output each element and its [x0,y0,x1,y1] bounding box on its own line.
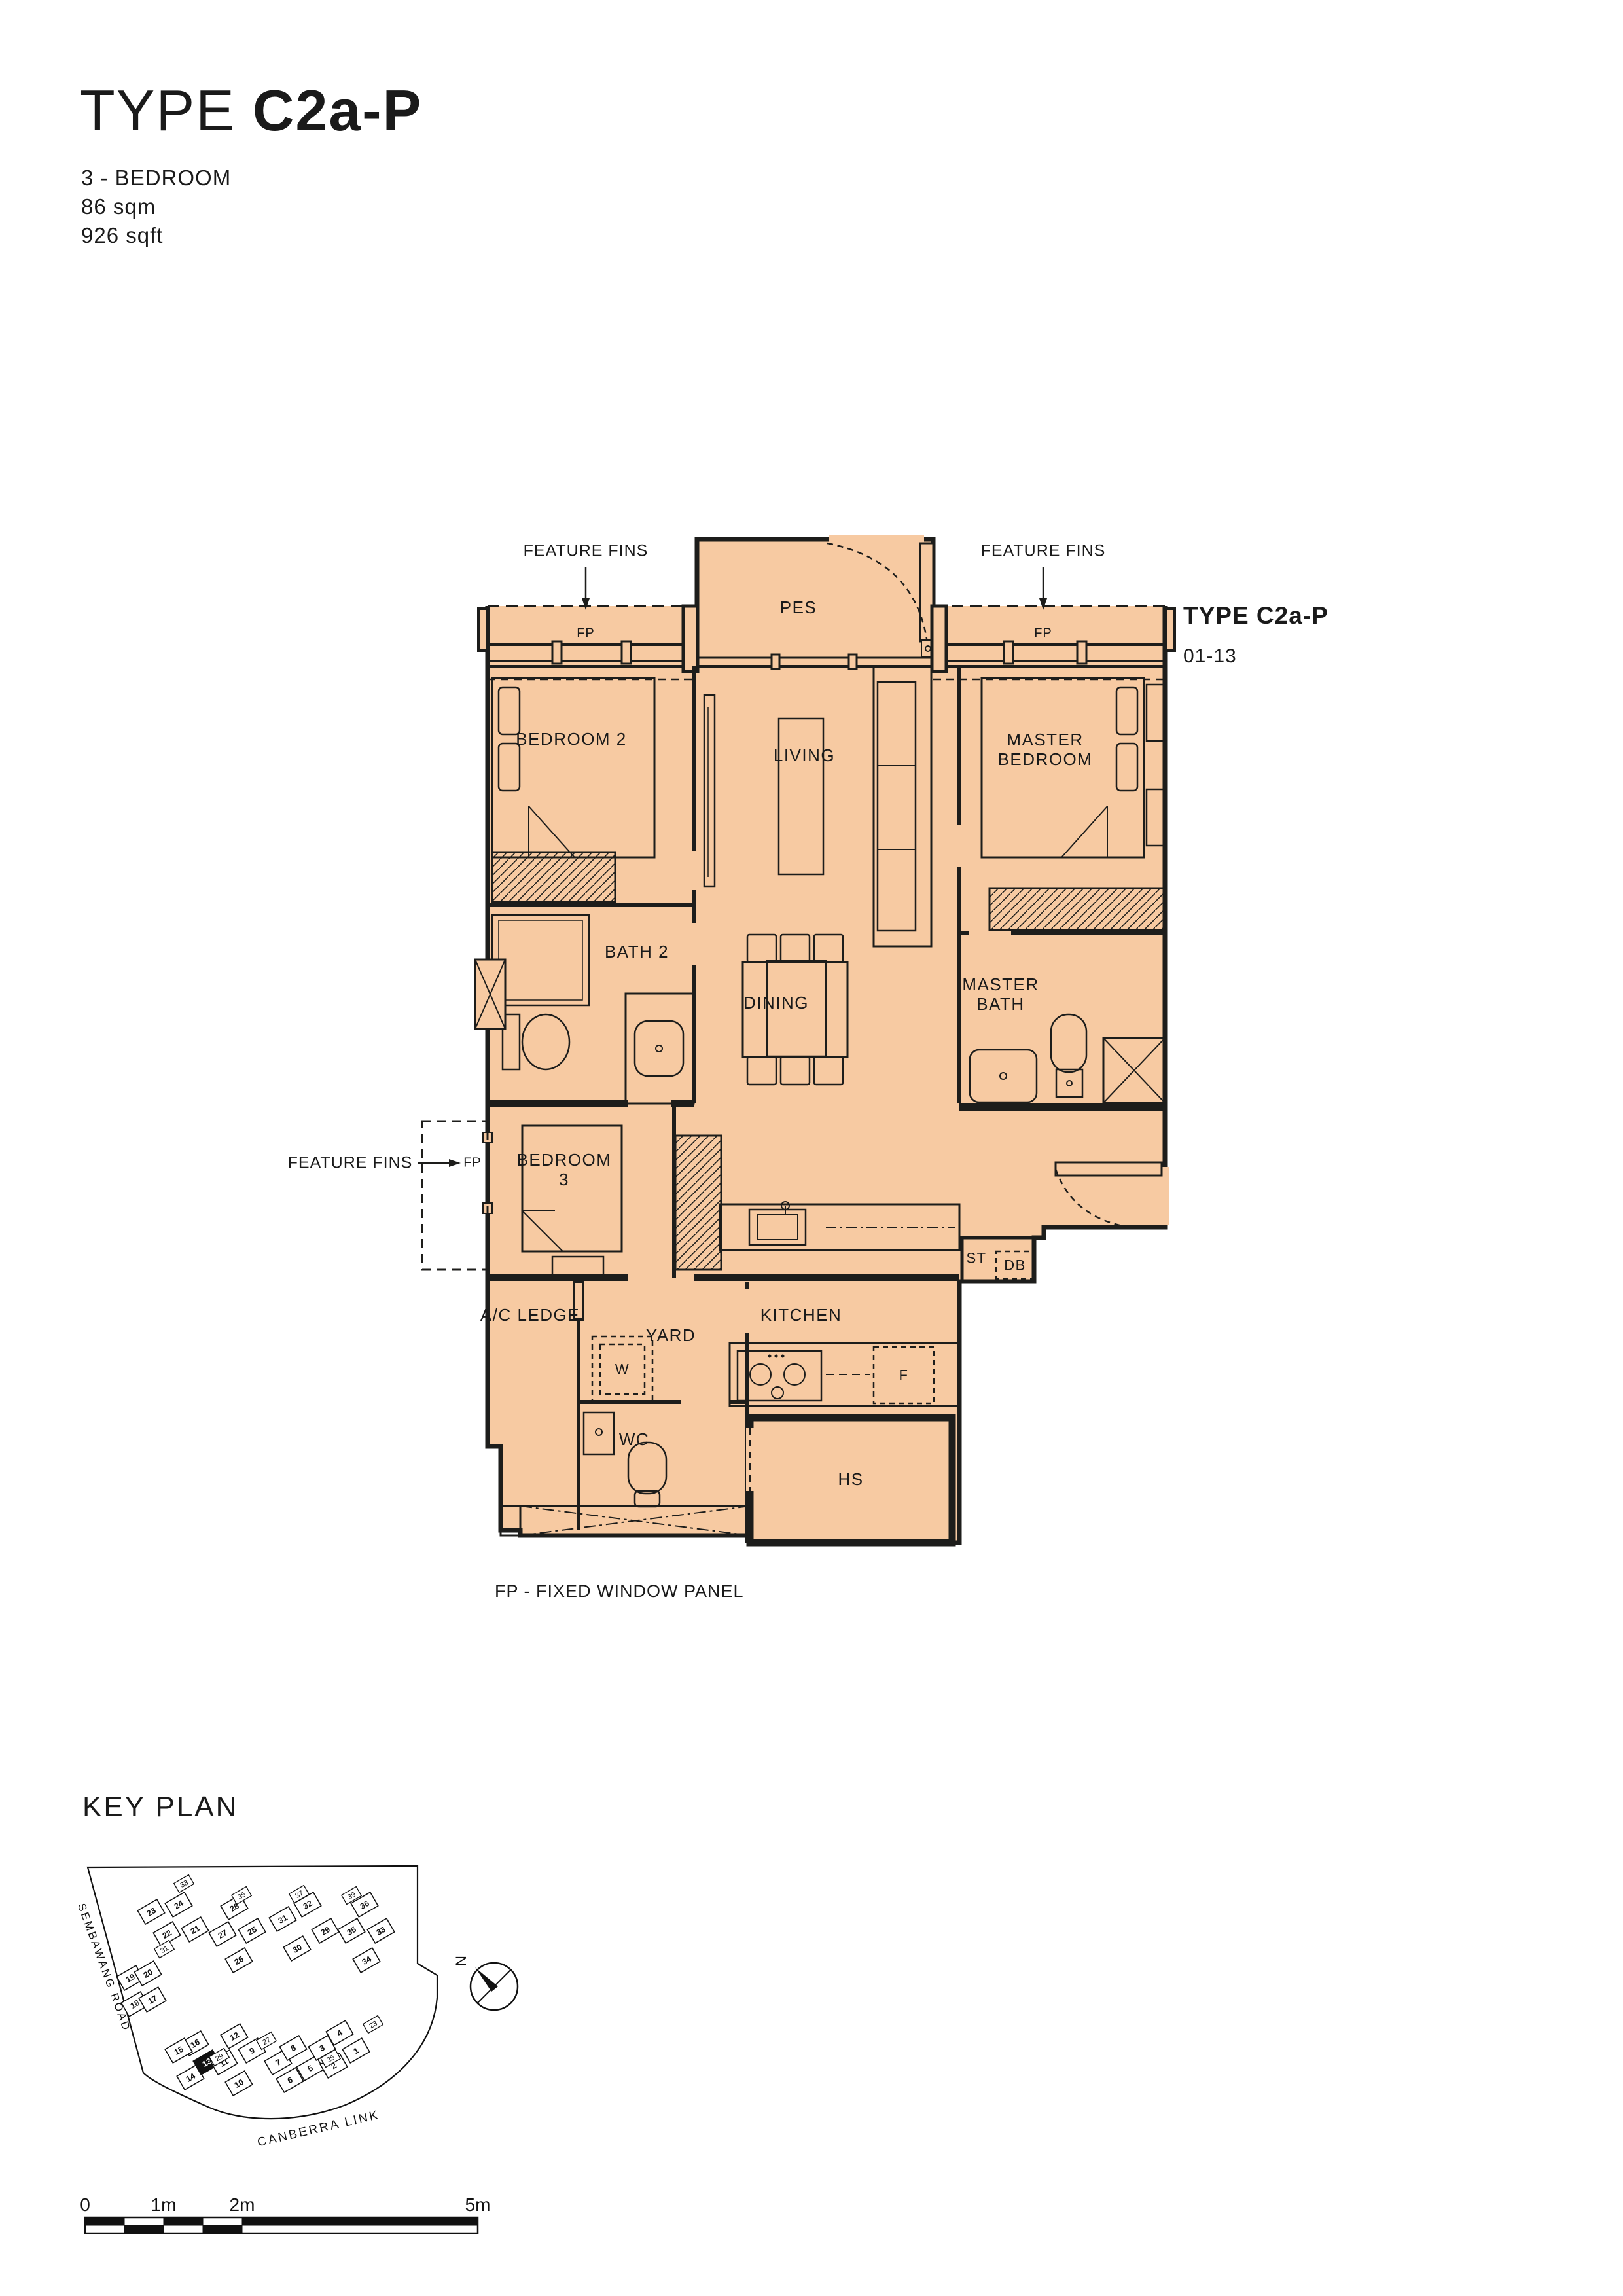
scale-seg-top [124,2217,164,2225]
scale-seg-top [242,2217,478,2225]
entry-door-leaf [1056,1162,1162,1175]
feature-fins-label-lower: FEATURE FINS [288,1154,413,1173]
pes-door-opening [829,535,924,543]
scale-tick-5m: 5m [465,2195,491,2215]
fp-label-left: FP [577,626,595,641]
scale-bar: 01m2m5m [76,2194,547,2246]
keyplan-block-24: 24 [165,1892,192,1917]
keyplan-block-34: 34 [353,1948,380,1973]
north-label: N [453,1956,469,1966]
scale-seg-bottom [85,2225,124,2233]
unit-specs: 3 - BEDROOM 86 sqm 926 sqft [81,164,231,250]
keyplan-block-21: 21 [181,1917,208,1942]
scale-seg-bottom [203,2225,242,2233]
keyplan-block-31: 31 [269,1907,296,1931]
keyplan-block-23: 23 [137,1899,164,1924]
unit-annotation: TYPE C2a-P 01-13 [1183,602,1329,668]
unit-annotation-type: TYPE C2a-P [1183,602,1329,630]
keyplan-block-12: 12 [221,2024,247,2049]
keyplan-block-29: 29 [312,1918,338,1943]
floor-plan-svg [262,511,1230,1623]
keyplan-block-27: 27 [209,1922,236,1946]
keyplan-block-33: 33 [367,1918,394,1943]
title-prefix: TYPE [80,78,236,143]
keyplan-block-30: 30 [283,1936,310,1961]
keyplan-blocks: 2324222128272526313230293635333419201817… [116,1892,394,2096]
scale-tick-0: 0 [80,2195,90,2215]
fp-label-lower: FP [463,1156,482,1171]
floorplan-page: TYPEC2a-P 3 - BEDROOM 86 sqm 926 sqft [0,0,1623,2296]
keyplan-heading: KEY PLAN [82,1791,238,1823]
keyplan-block-25: 25 [238,1918,265,1943]
scale-seg-bottom [124,2225,164,2233]
scale-seg-top [85,2217,124,2225]
fp-legend: FP - FIXED WINDOW PANEL [495,1581,744,1602]
keyplan-svg: 2324222128272526313230293635333419201817… [79,1826,524,2179]
keyplan-block-35: 35 [338,1918,365,1943]
keyplan-block-26: 26 [225,1948,252,1973]
road-label-canberra: CANBERRA LINK [256,2108,381,2149]
scale-seg-top [203,2217,242,2225]
page-title: TYPEC2a-P [80,77,422,144]
road-label-sembawang: SEMBAWANG ROAD [79,1902,133,2034]
spec-area-sqm: 86 sqm [81,192,231,221]
feature-fins-label-right: FEATURE FINS [981,542,1106,561]
feature-fins-dashed-zone [422,1121,488,1270]
scale-tick-2m: 2m [230,2195,255,2215]
spec-area-sqft: 926 sqft [81,221,231,250]
keyplan-block-10: 10 [225,2071,252,2096]
feature-fins-label-left: FEATURE FINS [524,542,649,561]
scale-seg-bottom [164,2225,203,2233]
scale-seg-top [164,2217,203,2225]
keyplan-tag-23: 23 [363,2016,383,2034]
keyplan-tag-33: 33 [174,1875,194,1893]
bath2-window [475,960,505,1029]
keyplan-tag-31: 31 [154,1941,175,1958]
scale-tick-1m: 1m [151,2195,177,2215]
spec-bedrooms: 3 - BEDROOM [81,164,231,192]
unit-annotation-stack: 01-13 [1183,645,1329,668]
keyplan-block-1: 1 [342,2038,369,2063]
title-unit-type: C2a-P [253,78,422,143]
scale-seg-bottom [242,2225,478,2233]
fp-label-right: FP [1034,626,1052,641]
north-arrow: N [453,1956,518,2010]
yard-fin [574,1282,583,1319]
hs-room [750,1418,952,1543]
